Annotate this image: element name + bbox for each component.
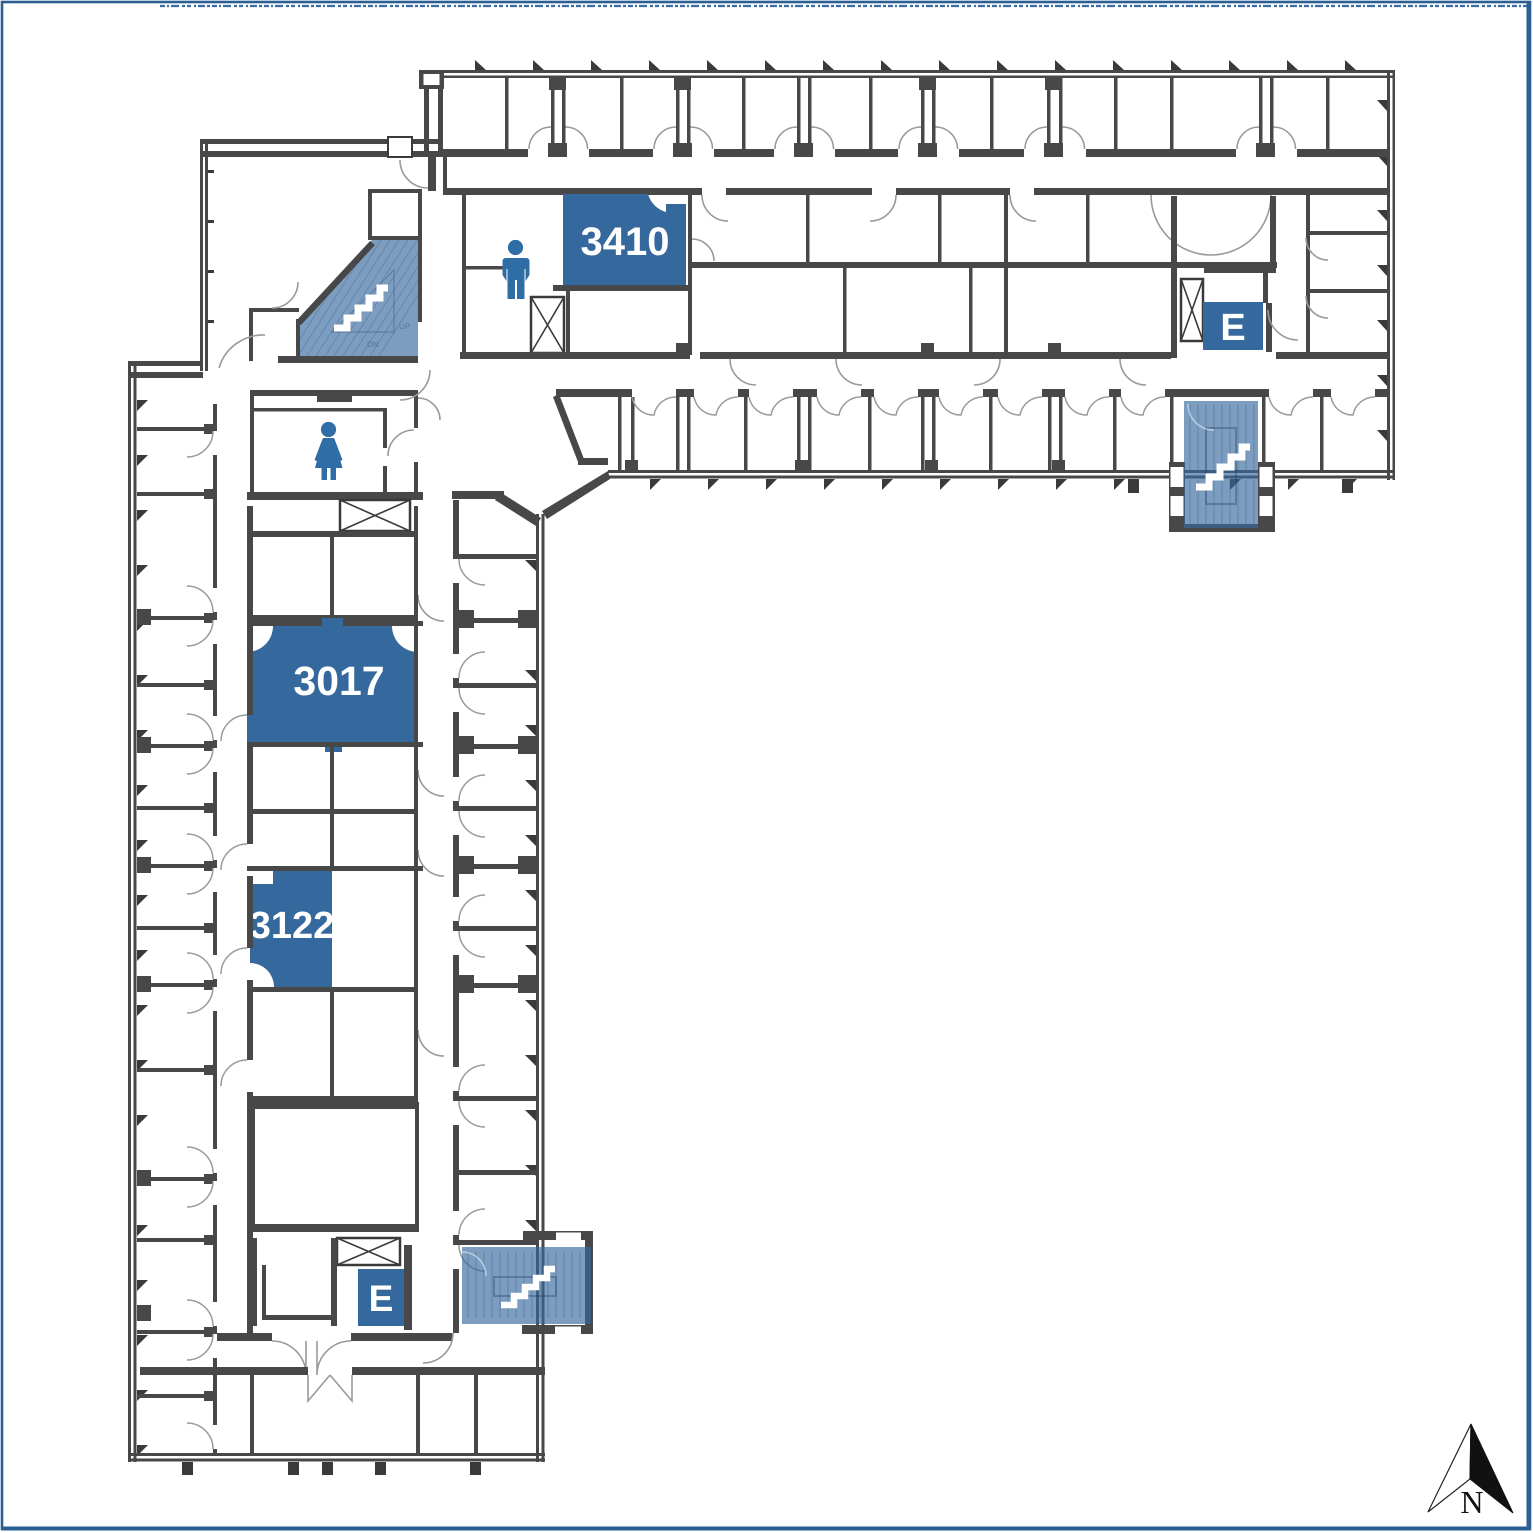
svg-text:DN: DN [367,340,379,349]
svg-text:N: N [1460,1484,1483,1520]
svg-text:UP: UP [399,322,410,331]
svg-text:E: E [1220,307,1245,349]
svg-text:3410: 3410 [581,220,670,264]
svg-text:E: E [369,1278,394,1319]
svg-text:3122: 3122 [250,905,335,947]
svg-text:3017: 3017 [293,658,384,704]
